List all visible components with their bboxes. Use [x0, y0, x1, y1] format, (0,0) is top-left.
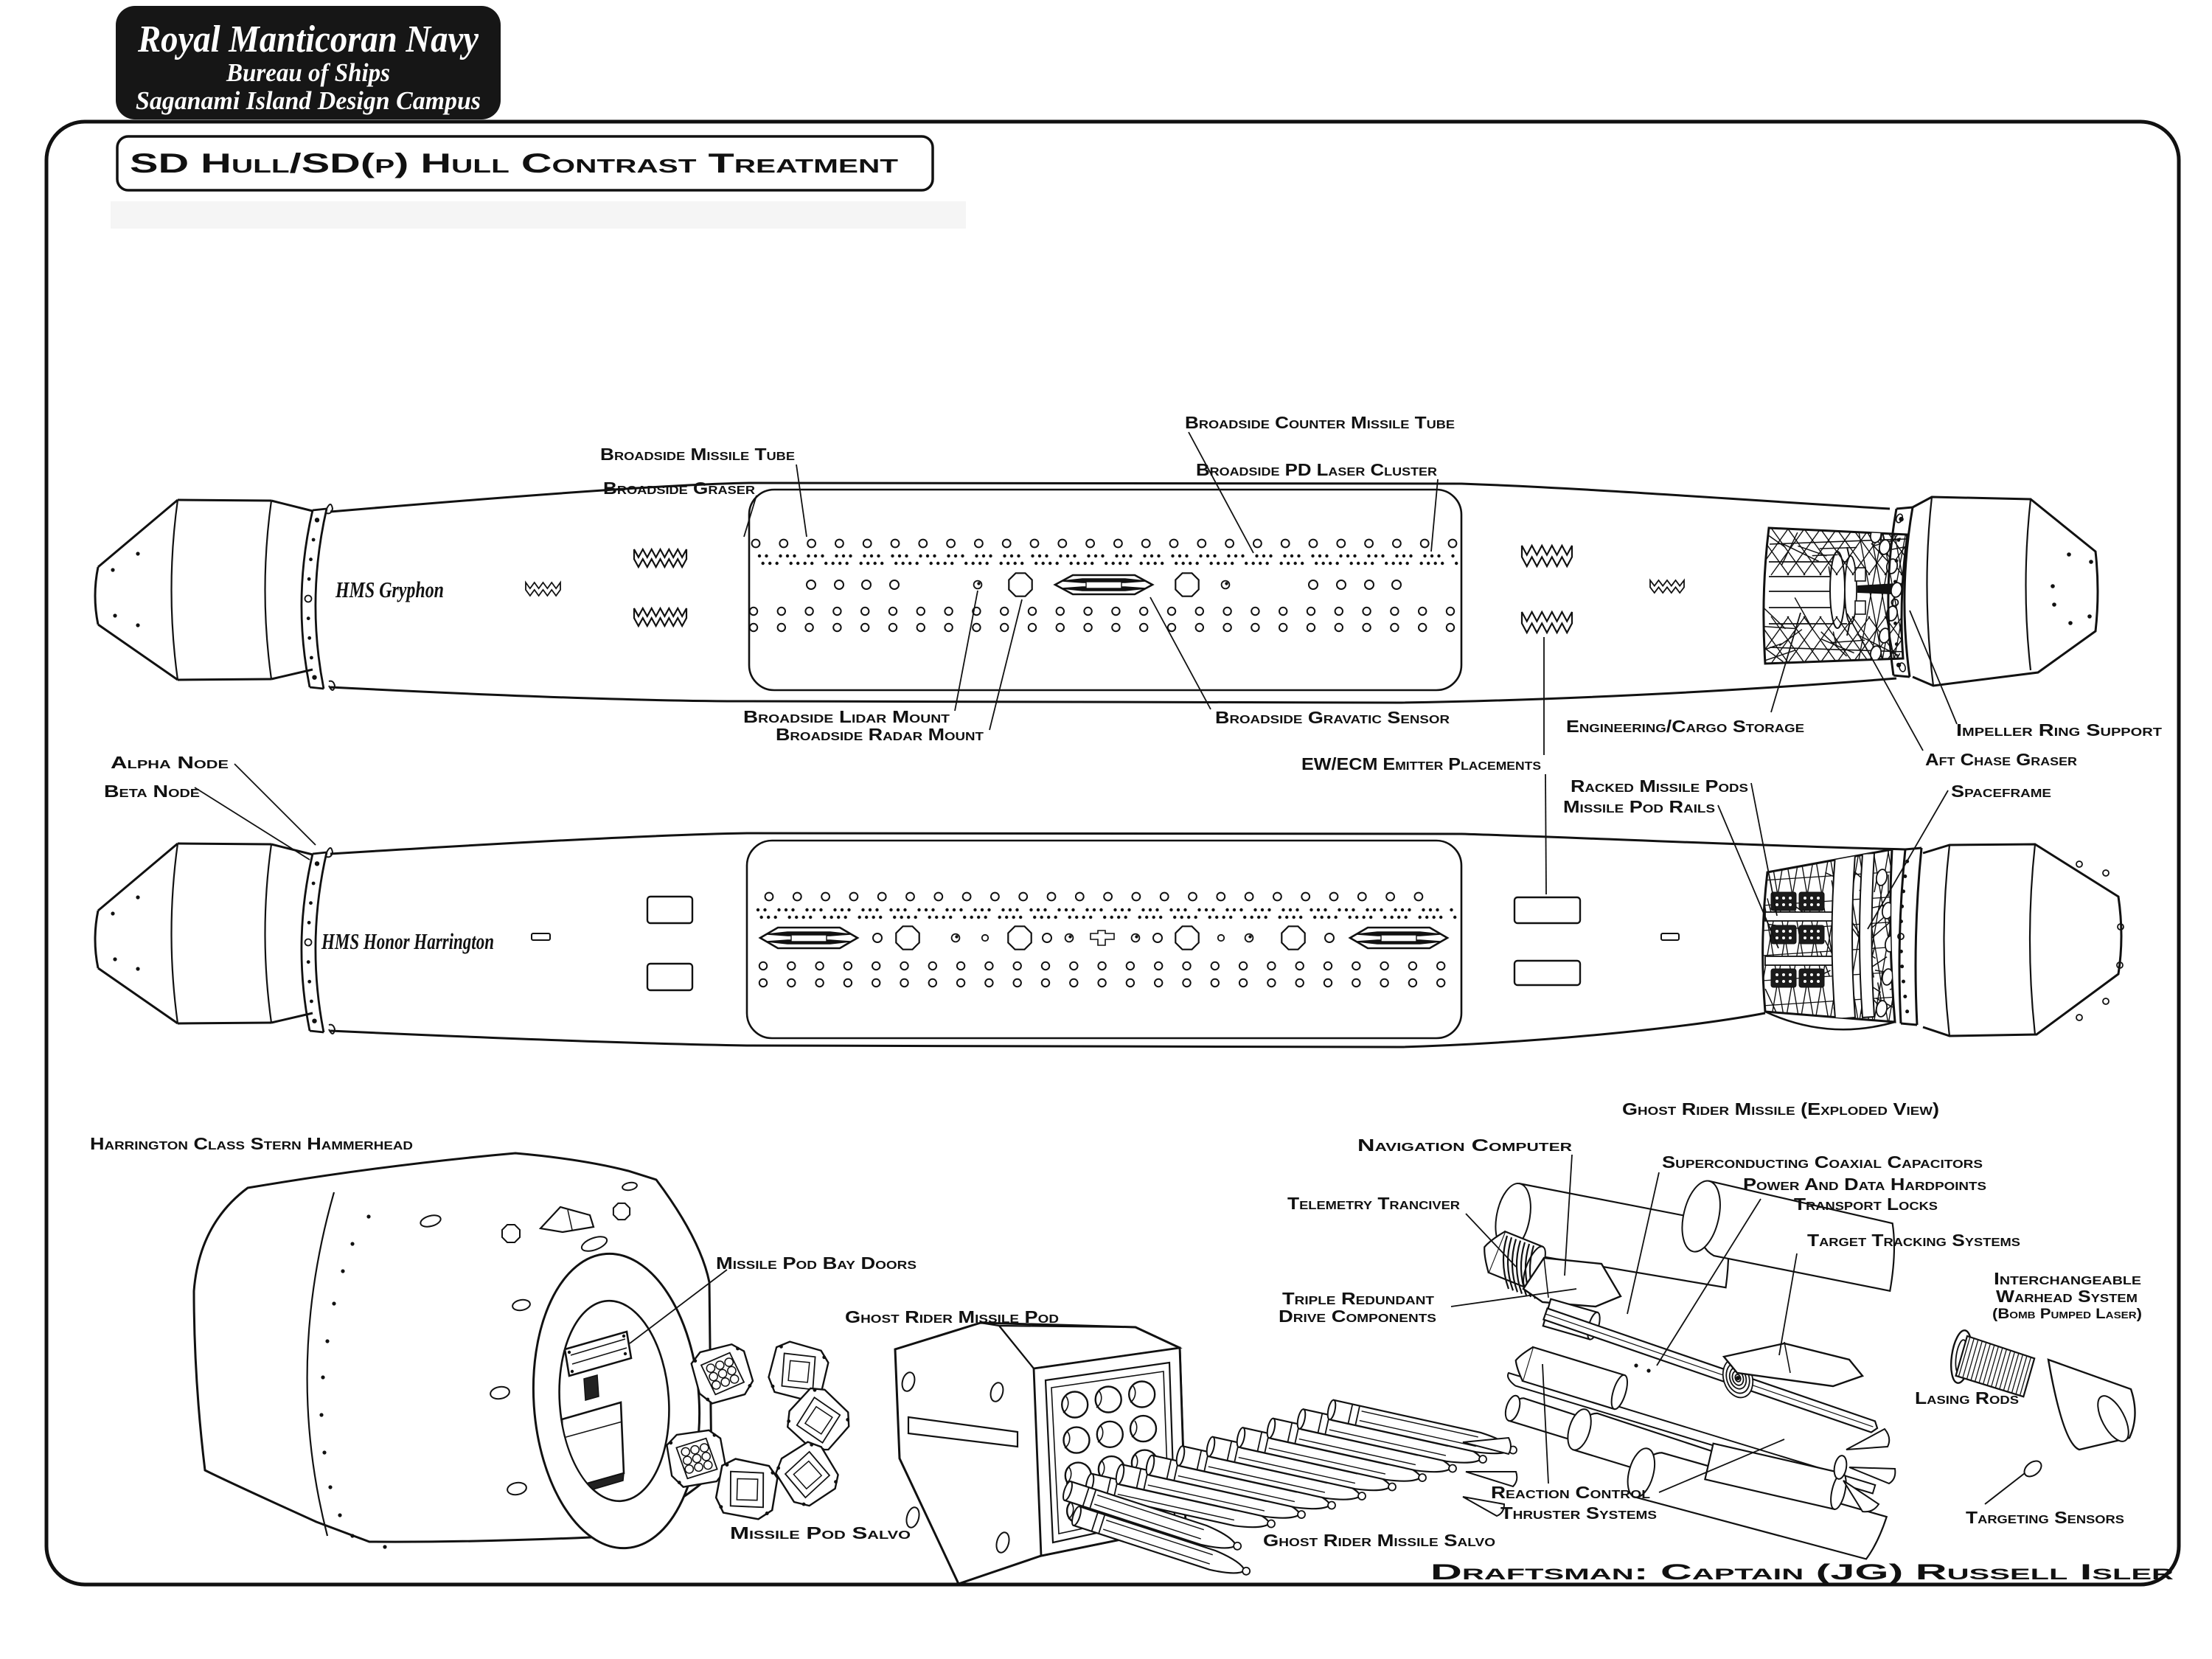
svg-text:Bureau of Ships: Bureau of Ships	[226, 58, 390, 87]
svg-text:Draftsman: Captain (JG) Russel: Draftsman: Captain (JG) Russell Isler	[1430, 1560, 2174, 1585]
svg-text:Broadside Graser: Broadside Graser	[603, 479, 755, 498]
svg-text:Missile Pod Salvo: Missile Pod Salvo	[730, 1523, 911, 1543]
svg-text:Spaceframe: Spaceframe	[1951, 782, 2051, 801]
svg-text:Telemetry Tranciver: Telemetry Tranciver	[1287, 1194, 1461, 1213]
svg-text:Alpha Node: Alpha Node	[111, 753, 229, 772]
svg-text:Navigation Computer: Navigation Computer	[1357, 1135, 1573, 1155]
svg-text:Ghost Rider Missile Salvo: Ghost Rider Missile Salvo	[1263, 1531, 1495, 1550]
svg-text:Reaction Control: Reaction Control	[1491, 1483, 1650, 1502]
svg-text:(Bomb Pumped Laser): (Bomb Pumped Laser)	[1992, 1307, 2142, 1322]
svg-text:SD Hull/SD(p) Hull Contrast Tr: SD Hull/SD(p) Hull Contrast Treatment	[130, 148, 898, 178]
svg-text:Targeting Sensors: Targeting Sensors	[1966, 1508, 2124, 1527]
svg-text:Broadside Lidar Mount: Broadside Lidar Mount	[743, 707, 950, 726]
svg-text:Warhead System: Warhead System	[1996, 1287, 2138, 1306]
svg-text:Engineering/Cargo Storage: Engineering/Cargo Storage	[1566, 717, 1804, 736]
svg-text:Target Tracking Systems: Target Tracking Systems	[1807, 1231, 2020, 1250]
svg-text:Impeller Ring Support: Impeller Ring Support	[1956, 720, 2162, 740]
svg-text:Broadside Missile Tube: Broadside Missile Tube	[600, 445, 795, 464]
svg-text:Superconducting Coaxial Capaci: Superconducting Coaxial Capacitors	[1662, 1152, 1983, 1172]
svg-text:Interchangeable: Interchangeable	[1994, 1269, 2141, 1288]
svg-text:Thruster Systems: Thruster Systems	[1500, 1503, 1657, 1523]
svg-text:Ghost Rider Missile (Exploded: Ghost Rider Missile (Exploded View)	[1622, 1099, 1939, 1119]
svg-text:Racked Missile Pods: Racked Missile Pods	[1571, 776, 1748, 796]
svg-text:Aft Chase Graser: Aft Chase Graser	[1925, 750, 2077, 769]
svg-text:Broadside Radar Mount: Broadside Radar Mount	[776, 725, 984, 744]
svg-text:Beta Node: Beta Node	[104, 782, 200, 801]
svg-text:Broadside Counter Missile Tube: Broadside Counter Missile Tube	[1185, 413, 1455, 432]
svg-text:Royal Manticoran Navy: Royal Manticoran Navy	[137, 18, 479, 60]
svg-text:Ghost Rider Missile Pod: Ghost Rider Missile Pod	[845, 1307, 1059, 1326]
svg-text:EW/ECM Emitter Placements: EW/ECM Emitter Placements	[1301, 754, 1541, 773]
svg-text:Missile Pod Bay Doors: Missile Pod Bay Doors	[716, 1253, 917, 1273]
svg-text:Saganami Island Design Campus: Saganami Island Design Campus	[136, 86, 481, 115]
svg-text:HMS Gryphon: HMS Gryphon	[335, 577, 444, 602]
svg-text:Lasing Rods: Lasing Rods	[1915, 1388, 2019, 1408]
svg-text:Broadside PD Laser Cluster: Broadside PD Laser Cluster	[1196, 460, 1437, 479]
svg-text:Triple Redundant: Triple Redundant	[1282, 1289, 1434, 1308]
svg-text:HMS Honor Harrington: HMS Honor Harrington	[321, 928, 494, 954]
svg-text:Harrington Class Stern Hammerh: Harrington Class Stern Hammerhead	[90, 1134, 413, 1153]
svg-text:Drive Components: Drive Components	[1279, 1307, 1436, 1326]
svg-text:Power And Data Hardpoints: Power And Data Hardpoints	[1743, 1175, 1986, 1194]
svg-text:Broadside Gravatic Sensor: Broadside Gravatic Sensor	[1215, 708, 1450, 727]
svg-text:Missile Pod Rails: Missile Pod Rails	[1563, 797, 1715, 816]
svg-text:Transport Locks: Transport Locks	[1794, 1194, 1938, 1214]
